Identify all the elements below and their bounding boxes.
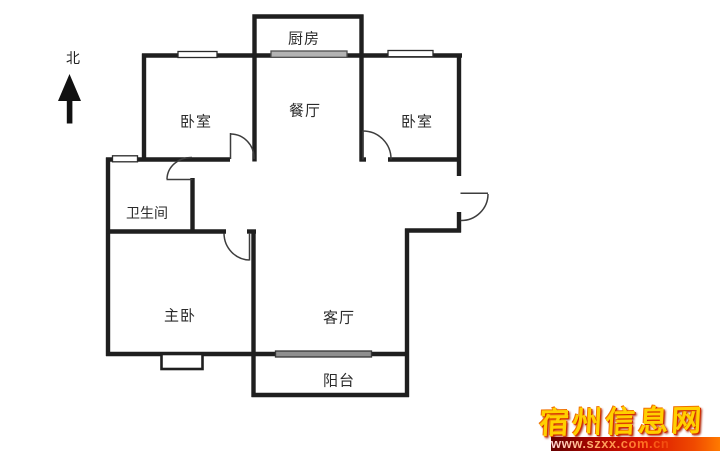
bay-window-master — [162, 354, 203, 369]
watermark-site-name: 宿州信息网 — [538, 396, 705, 443]
room-label-dining: 餐厅 — [289, 100, 321, 121]
watermark-banner: www.szxx.com.cn — [551, 437, 720, 451]
room-label-bedroom-right: 卧室 — [401, 111, 433, 132]
room-label-bathroom: 卫生间 — [126, 203, 168, 223]
window-bedroom2-north — [388, 51, 433, 57]
window-living-balcony — [276, 351, 372, 357]
floorplan-canvas: 北 厨房 餐厅 卧室 卧室 卫生间 主卧 客厅 阳台 宿州信息网 www.szx… — [0, 0, 720, 459]
window-kitchen-pass — [271, 51, 347, 57]
room-label-kitchen: 厨房 — [288, 28, 320, 49]
doors — [167, 131, 489, 261]
room-label-master-bedroom: 主卧 — [164, 305, 196, 326]
room-label-bedroom-left: 卧室 — [180, 111, 212, 132]
watermark-site-url: www.szxx.com.cn — [551, 437, 720, 451]
compass-north-label: 北 — [66, 48, 80, 68]
window-bedroom1-north — [178, 52, 217, 58]
door-bedroom2 — [363, 131, 391, 160]
door-bedroom1 — [231, 133, 255, 159]
room-label-balcony: 阳台 — [323, 370, 355, 391]
room-label-living-room: 客厅 — [323, 307, 355, 328]
door-entry — [461, 193, 489, 220]
window-bathroom — [113, 156, 138, 162]
floorplan-drawing — [0, 0, 720, 459]
door-master-bedroom — [224, 233, 250, 261]
north-arrow-icon — [58, 74, 81, 124]
